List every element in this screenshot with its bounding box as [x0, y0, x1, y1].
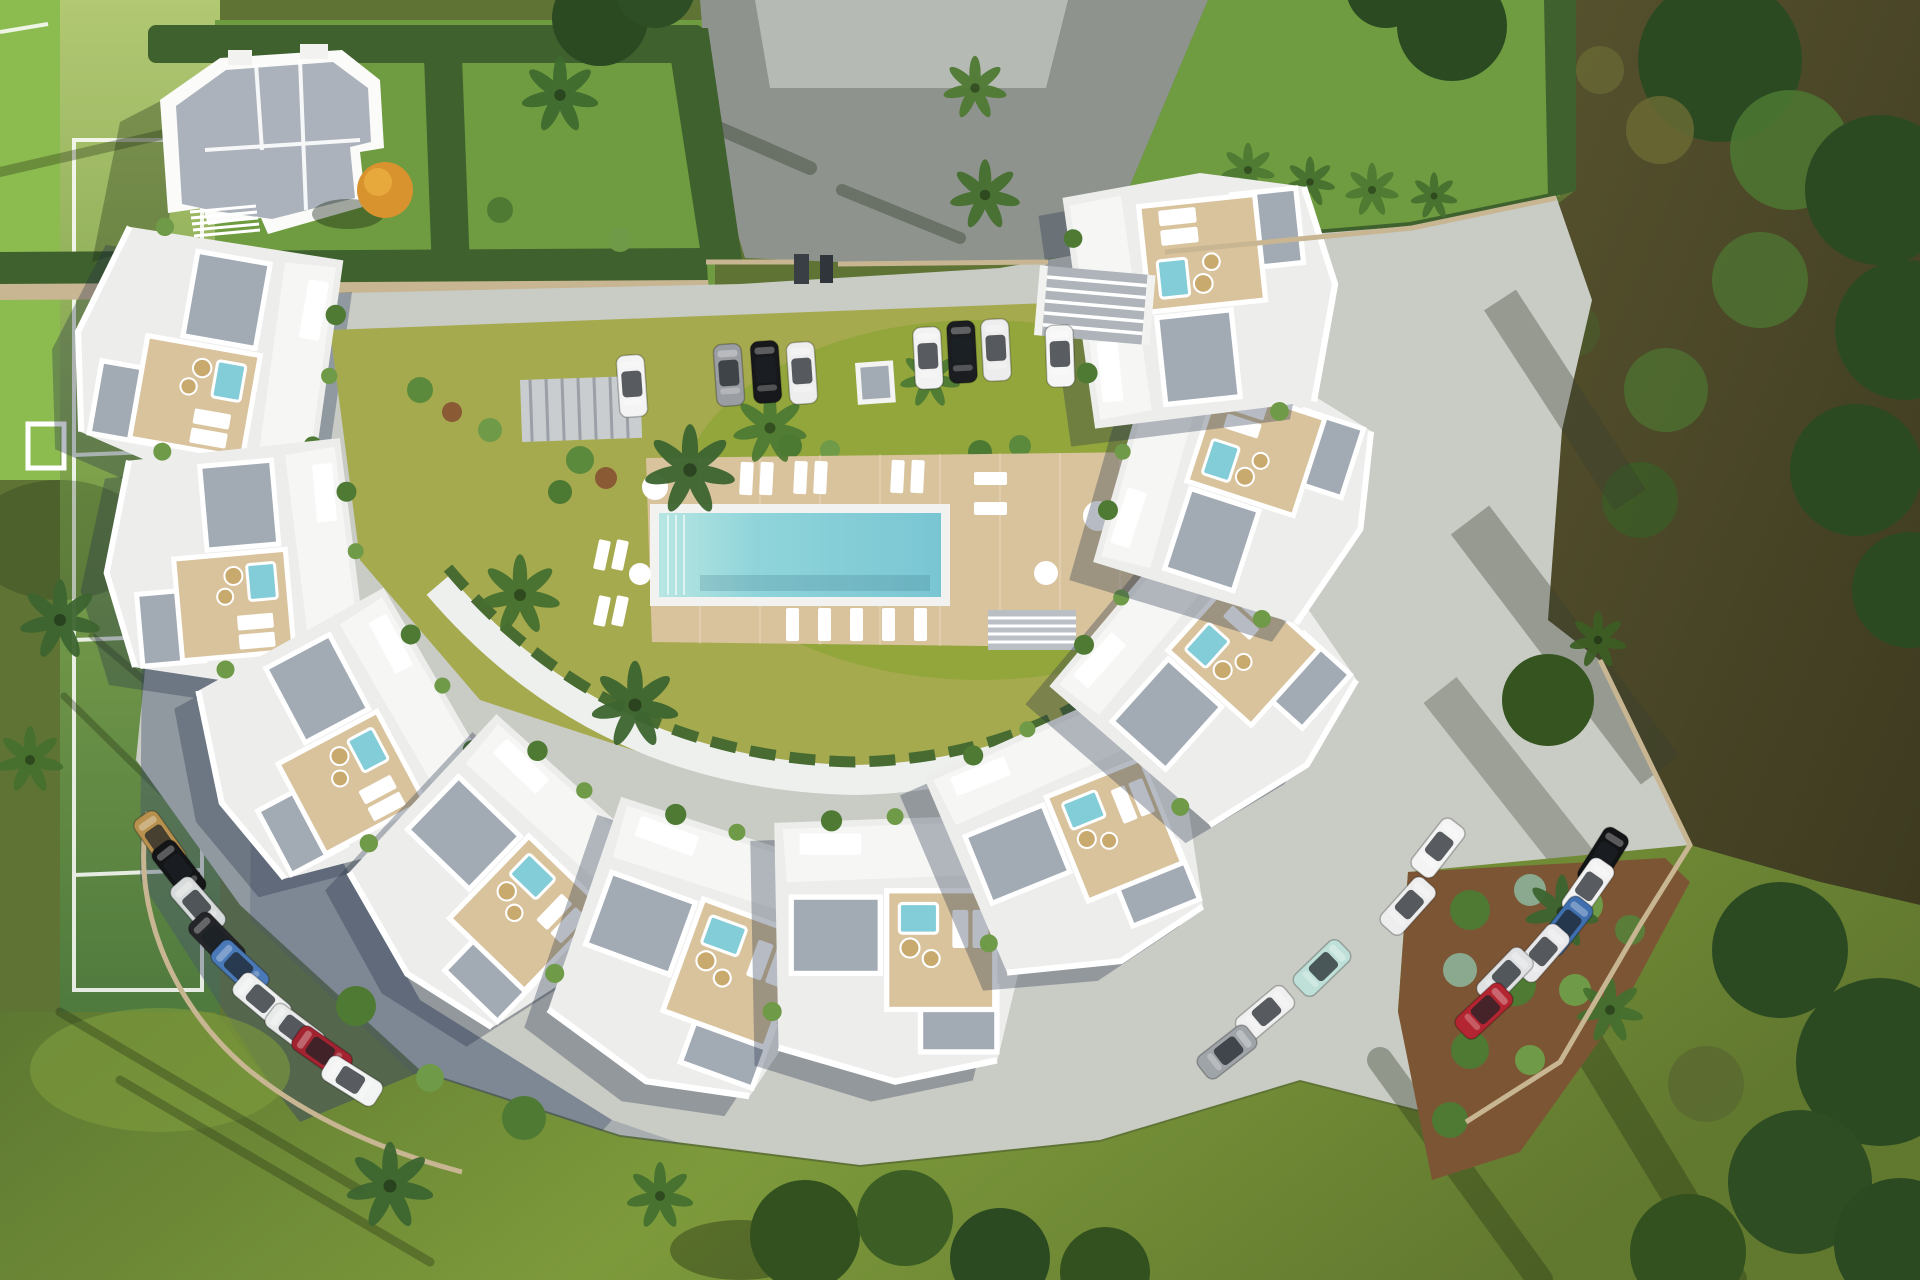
car: [946, 320, 977, 383]
shrub: [487, 197, 513, 223]
car: [912, 326, 943, 389]
hedge-east: [424, 56, 470, 272]
gate-post: [820, 255, 833, 283]
swimming-pool: [650, 504, 950, 606]
shrub: [416, 1064, 444, 1092]
tree-canopy: [1502, 654, 1594, 746]
entrance-booth: [855, 360, 896, 405]
shrub: [336, 986, 376, 1026]
hedge-east: [1544, 0, 1580, 198]
site-wall: [838, 262, 1048, 264]
car: [713, 343, 745, 407]
gate-post: [794, 254, 809, 284]
deck-stairs: [988, 610, 1076, 650]
car: [786, 341, 818, 405]
car: [616, 354, 648, 418]
shrub: [502, 1096, 546, 1140]
car: [980, 318, 1011, 381]
tree-canopy: [857, 1170, 953, 1266]
autumn-tree-highlight: [364, 168, 392, 196]
car: [750, 340, 782, 404]
aerial-render: Aerial 3D architectural render of a cres…: [0, 0, 1920, 1280]
car: [1045, 325, 1075, 388]
shrub: [608, 228, 632, 252]
shrub: [1668, 1046, 1744, 1122]
